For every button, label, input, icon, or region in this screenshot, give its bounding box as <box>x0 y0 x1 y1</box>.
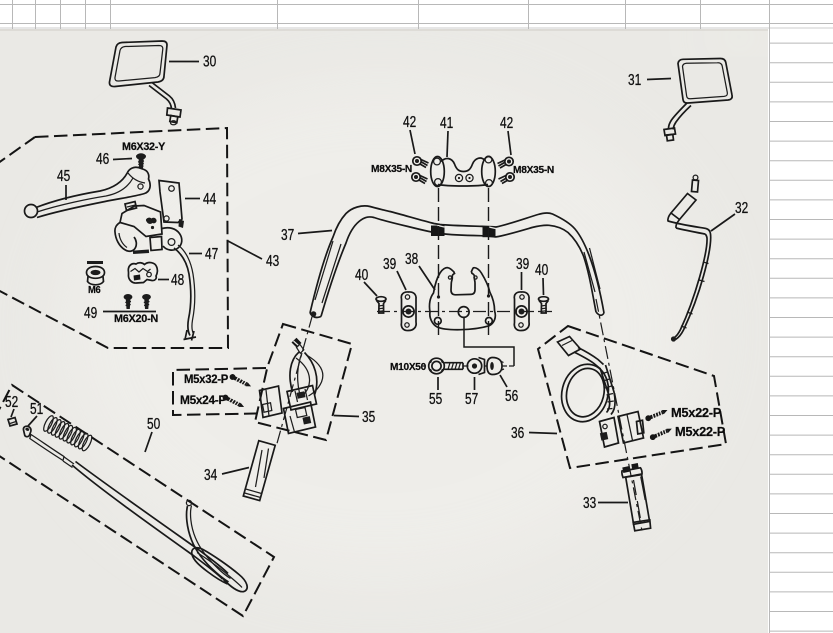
svg-text:46: 46 <box>96 151 109 168</box>
svg-text:38: 38 <box>405 251 418 268</box>
svg-text:31: 31 <box>628 72 641 89</box>
svg-text:32: 32 <box>735 200 748 217</box>
svg-text:47: 47 <box>205 246 218 263</box>
svg-text:M5x32-P: M5x32-P <box>184 374 229 386</box>
svg-text:57: 57 <box>465 391 478 408</box>
svg-text:M10X50: M10X50 <box>390 361 426 373</box>
svg-text:M6X20-N: M6X20-N <box>114 313 158 325</box>
svg-text:56: 56 <box>505 388 518 405</box>
svg-text:35: 35 <box>362 409 375 426</box>
svg-text:40: 40 <box>535 262 548 279</box>
svg-text:39: 39 <box>383 256 396 273</box>
svg-text:45: 45 <box>57 168 70 185</box>
svg-text:39: 39 <box>516 256 529 273</box>
svg-text:52: 52 <box>5 394 18 411</box>
svg-text:51: 51 <box>30 401 43 418</box>
svg-text:M5x24-P: M5x24-P <box>180 395 227 407</box>
svg-text:30: 30 <box>203 54 216 71</box>
svg-text:33: 33 <box>583 495 596 512</box>
svg-text:49: 49 <box>84 305 97 322</box>
svg-text:48: 48 <box>171 272 184 289</box>
svg-text:41: 41 <box>440 115 453 132</box>
svg-text:M8X35-N: M8X35-N <box>513 164 554 176</box>
svg-text:42: 42 <box>500 115 513 132</box>
svg-text:42: 42 <box>403 114 416 131</box>
svg-text:36: 36 <box>511 425 524 442</box>
svg-text:40: 40 <box>355 267 368 284</box>
svg-text:55: 55 <box>429 391 442 408</box>
svg-text:M8X35-N: M8X35-N <box>371 163 412 175</box>
svg-text:M5x22-P: M5x22-P <box>671 406 721 420</box>
svg-text:37: 37 <box>281 227 294 244</box>
svg-text:M6X32-Y: M6X32-Y <box>122 141 166 153</box>
svg-text:M5x22-P: M5x22-P <box>675 425 725 439</box>
svg-text:50: 50 <box>147 416 160 433</box>
svg-text:44: 44 <box>203 191 216 208</box>
svg-text:M6: M6 <box>88 285 101 296</box>
svg-text:34: 34 <box>204 467 217 484</box>
svg-text:43: 43 <box>266 253 279 270</box>
